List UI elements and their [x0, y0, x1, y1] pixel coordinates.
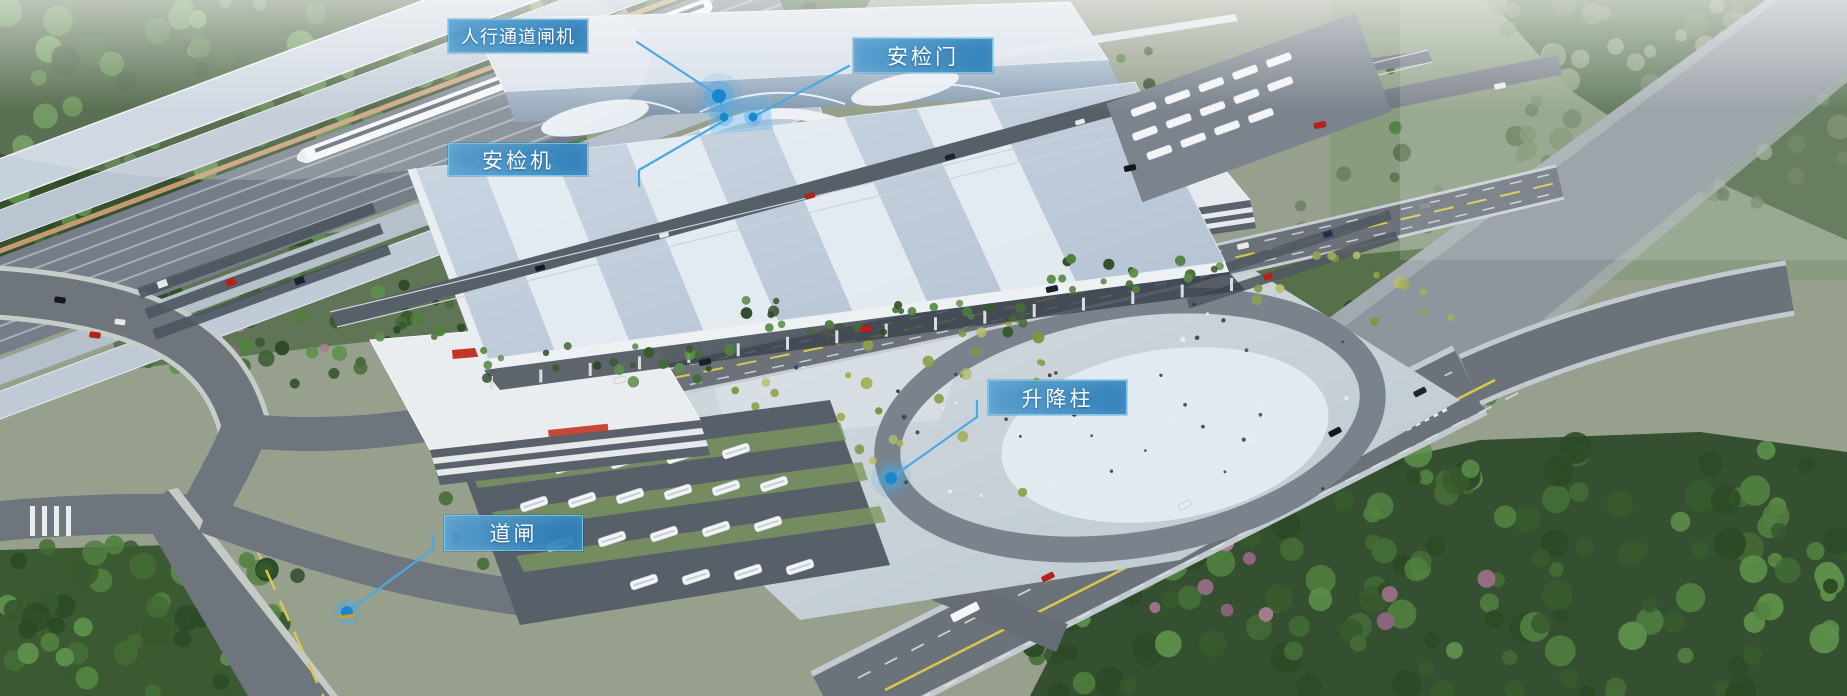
- callout-dot-lift-bollard: [885, 472, 897, 484]
- callout-label-lift-bollard: 升降柱: [988, 380, 1127, 415]
- callout-label-barrier-gate: 道闸: [444, 515, 583, 551]
- callout-dot-pedestrian-gate: [712, 89, 726, 103]
- station-aerial-rendering: 人行通道闸机 安检门 安检机 升降柱 道闸: [0, 0, 1847, 696]
- callout-label-security-scanner: 安检机: [448, 143, 588, 176]
- callout-dot-security-scanner: [720, 113, 729, 122]
- callout-label-security-door: 安检门: [853, 38, 993, 73]
- callout-label-pedestrian-gate: 人行通道闸机: [448, 19, 588, 53]
- scene-render: [0, 0, 1847, 696]
- callout-dot-security-door: [749, 113, 758, 122]
